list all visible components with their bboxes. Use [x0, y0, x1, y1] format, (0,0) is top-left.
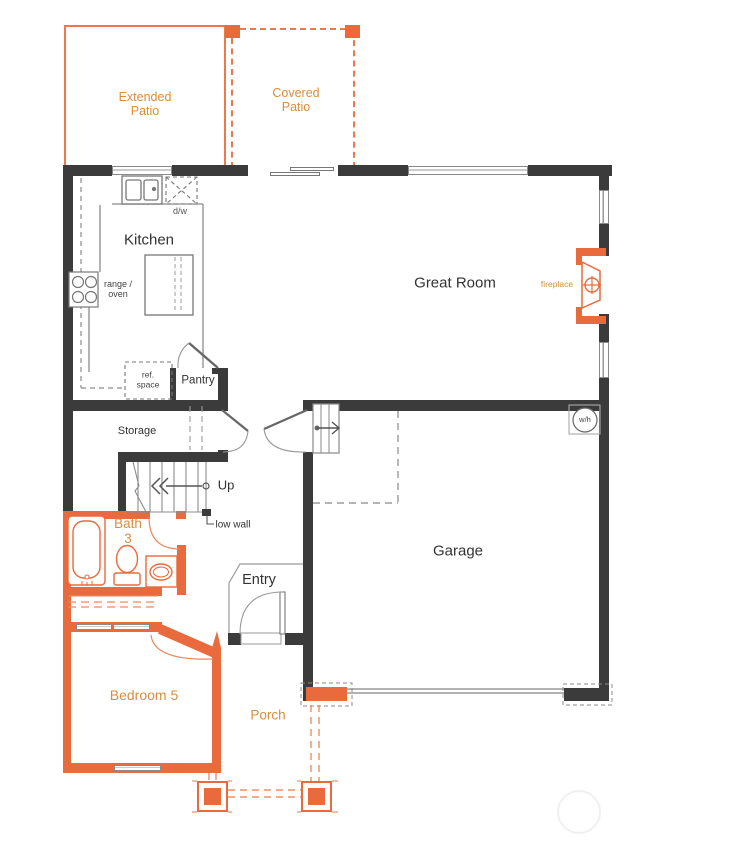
kitchen-island: [145, 255, 193, 315]
range-oven-icon: [69, 272, 98, 307]
vanity-sink-icon: [146, 556, 177, 587]
great-room-label: Great Room: [414, 276, 496, 293]
garage-entry-door: [264, 410, 307, 452]
garage-door-line: [347, 689, 564, 693]
garage-label: Garage: [433, 544, 483, 561]
storage-label: Storage: [118, 425, 157, 437]
up-label: Up: [218, 479, 235, 494]
entry-label: Entry: [242, 572, 276, 588]
kitchen-label: Kitchen: [124, 233, 174, 250]
toilet-icon: [114, 546, 140, 586]
stairs: [128, 462, 206, 512]
covered-patio-label: CoveredPatio: [272, 86, 319, 114]
bath-3-label: Bath3: [114, 516, 142, 546]
bedroom-door: [151, 629, 221, 659]
stairs-overhead-dashed: [190, 406, 202, 450]
garage-step: [313, 404, 339, 453]
wh-label: w/h: [579, 416, 591, 424]
hall-door: [222, 410, 248, 452]
kitchen-sink: [122, 176, 162, 204]
detail-overlay: [0, 0, 746, 841]
bath-door-arc: [149, 517, 180, 549]
fireplace-label: fireplace: [541, 280, 573, 290]
fireplace-icon: [576, 248, 606, 324]
closet-rod: [68, 596, 158, 607]
ref-space-label: ref.space: [137, 370, 160, 389]
low-wall-marker: [202, 509, 214, 524]
pantry-door: [178, 343, 218, 368]
dishwasher-icon: [166, 177, 197, 204]
up-arrow: [152, 478, 209, 494]
low-wall-label: low wall: [215, 519, 250, 530]
bedroom-5-label: Bedroom 5: [110, 688, 178, 704]
range-oven-label: range /oven: [104, 279, 132, 299]
bathtub-icon: [68, 516, 105, 586]
pantry-label: Pantry: [181, 375, 214, 388]
extended-patio-label: ExtendedPatio: [119, 90, 172, 118]
porch-label: Porch: [250, 707, 285, 722]
dw-label: d/w: [173, 206, 187, 216]
foundation-dashed: [301, 683, 612, 706]
front-door: [240, 592, 285, 644]
floor-plan: ExtendedPatio CoveredPatio Kitchen d/w r…: [0, 0, 746, 841]
